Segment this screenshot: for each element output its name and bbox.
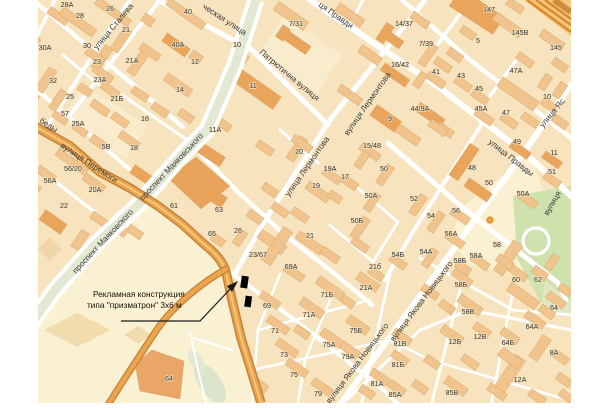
svg-text:5В: 5В — [102, 142, 111, 151]
svg-text:10: 10 — [543, 92, 551, 101]
svg-text:63: 63 — [215, 205, 223, 214]
svg-text:44/9А: 44/9А — [411, 104, 430, 113]
svg-text:85В: 85В — [446, 388, 459, 397]
svg-text:48: 48 — [468, 163, 476, 172]
svg-text:69А: 69А — [285, 262, 298, 271]
svg-text:21А: 21А — [360, 283, 373, 292]
svg-text:12В: 12В — [474, 332, 487, 341]
svg-text:17: 17 — [341, 172, 349, 181]
svg-text:49: 49 — [513, 137, 521, 146]
svg-text:64: 64 — [165, 374, 173, 383]
svg-text:64А: 64А — [526, 322, 539, 331]
svg-text:69: 69 — [263, 301, 271, 310]
svg-text:64: 64 — [550, 303, 558, 312]
svg-text:50: 50 — [380, 164, 388, 173]
svg-text:50А: 50А — [365, 191, 378, 200]
svg-text:12Б: 12Б — [449, 337, 462, 346]
svg-text:58: 58 — [493, 240, 501, 249]
svg-text:12: 12 — [191, 57, 199, 66]
svg-text:51: 51 — [548, 167, 556, 176]
svg-text:147: 147 — [483, 5, 495, 14]
svg-text:30: 30 — [83, 41, 91, 50]
svg-text:71Б: 71Б — [321, 290, 334, 299]
svg-text:41: 41 — [432, 67, 440, 76]
svg-text:50А: 50А — [517, 189, 530, 198]
svg-text:57: 57 — [61, 109, 69, 118]
svg-text:25А: 25А — [72, 119, 85, 128]
svg-text:145: 145 — [550, 43, 562, 52]
svg-text:21: 21 — [122, 25, 130, 34]
svg-text:14: 14 — [176, 85, 184, 94]
svg-text:79А: 79А — [342, 352, 355, 361]
svg-text:5: 5 — [476, 36, 480, 45]
svg-text:21б: 21б — [369, 262, 381, 271]
svg-text:10: 10 — [233, 40, 241, 49]
svg-text:64Б: 64Б — [502, 338, 515, 347]
svg-text:26: 26 — [106, 4, 114, 13]
svg-text:28А: 28А — [61, 0, 74, 9]
svg-text:23А: 23А — [94, 75, 107, 84]
svg-text:60: 60 — [512, 275, 520, 284]
svg-text:21Б: 21Б — [111, 94, 124, 103]
svg-text:81Б: 81Б — [392, 360, 405, 369]
svg-text:54Б: 54Б — [392, 250, 405, 259]
svg-text:19: 19 — [312, 181, 320, 190]
svg-text:71А: 71А — [303, 310, 316, 319]
svg-text:73: 73 — [280, 350, 288, 359]
svg-text:52: 52 — [410, 194, 418, 203]
svg-text:32: 32 — [49, 76, 57, 85]
svg-text:47А: 47А — [510, 66, 523, 75]
svg-text:28: 28 — [76, 11, 84, 20]
svg-text:58А: 58А — [470, 251, 483, 260]
svg-text:19А: 19А — [324, 164, 337, 173]
svg-text:58В: 58В — [462, 307, 475, 316]
svg-text:56А: 56А — [445, 229, 458, 238]
svg-text:Рекламная конструкция: Рекламная конструкция — [93, 289, 185, 299]
svg-text:71: 71 — [271, 326, 279, 335]
svg-text:85А: 85А — [389, 390, 402, 399]
svg-text:23: 23 — [93, 57, 101, 66]
svg-text:65: 65 — [208, 229, 216, 238]
svg-text:20: 20 — [295, 147, 303, 156]
svg-text:50: 50 — [485, 178, 493, 187]
svg-text:75Б: 75Б — [350, 326, 363, 335]
svg-text:56/20: 56/20 — [64, 164, 82, 173]
svg-text:16: 16 — [141, 114, 149, 123]
svg-text:7/31: 7/31 — [289, 19, 303, 28]
svg-text:26: 26 — [234, 226, 242, 235]
svg-text:56А: 56А — [44, 176, 57, 185]
svg-text:45: 45 — [475, 84, 483, 93]
svg-text:15/48: 15/48 — [363, 141, 381, 150]
svg-text:145В: 145В — [512, 28, 529, 37]
svg-text:75: 75 — [290, 370, 298, 379]
svg-text:11А: 11А — [209, 125, 221, 134]
svg-text:50Б: 50Б — [351, 216, 364, 225]
svg-text:58Б: 58Б — [454, 256, 467, 265]
svg-text:16/42: 16/42 — [391, 60, 409, 69]
svg-text:58Б: 58Б — [455, 280, 468, 289]
svg-text:61: 61 — [170, 201, 178, 210]
svg-text:18: 18 — [130, 143, 138, 152]
svg-text:11: 11 — [550, 148, 557, 157]
svg-text:8А: 8А — [550, 348, 559, 357]
svg-text:54: 54 — [427, 211, 435, 220]
svg-text:20А: 20А — [89, 185, 102, 194]
svg-text:40А: 40А — [172, 40, 185, 49]
svg-text:40: 40 — [184, 7, 192, 16]
svg-text:56: 56 — [452, 206, 460, 215]
svg-text:47: 47 — [502, 108, 510, 117]
svg-text:12А: 12А — [514, 375, 527, 384]
svg-text:11: 11 — [249, 81, 256, 90]
svg-text:75А: 75А — [323, 340, 336, 349]
svg-text:23/67: 23/67 — [249, 250, 267, 259]
svg-text:79: 79 — [314, 389, 322, 398]
svg-text:21: 21 — [306, 231, 314, 240]
svg-text:43: 43 — [457, 71, 465, 80]
svg-text:81А: 81А — [371, 379, 384, 388]
svg-text:21А: 21А — [126, 56, 139, 65]
svg-text:25: 25 — [66, 92, 74, 101]
svg-text:типа "призматрон" 3х6 м: типа "призматрон" 3х6 м — [87, 300, 182, 310]
svg-text:22: 22 — [60, 201, 68, 210]
svg-text:54А: 54А — [420, 247, 433, 256]
svg-text:30А: 30А — [39, 43, 52, 52]
svg-text:81В: 81В — [394, 339, 407, 348]
svg-text:14/37: 14/37 — [395, 19, 413, 28]
svg-text:7/39: 7/39 — [419, 39, 433, 48]
svg-text:9: 9 — [388, 114, 392, 123]
svg-text:45А: 45А — [475, 104, 488, 113]
svg-text:62: 62 — [534, 275, 542, 284]
